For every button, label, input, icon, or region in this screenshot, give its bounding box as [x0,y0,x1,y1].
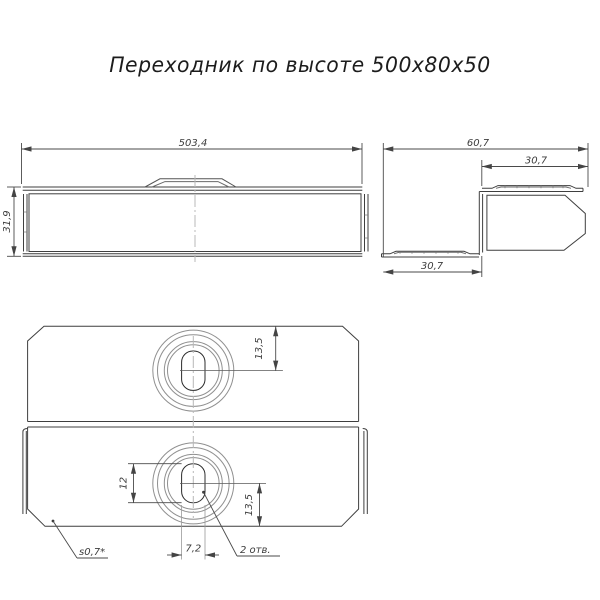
dim-label-side-bottom-flange: 30,7 [421,261,444,272]
side-plate [487,195,585,250]
side-view [382,186,586,257]
dim-label-side-overall: 60,7 [467,138,490,149]
plan-leader-holes-count: 2 отв. [202,491,280,556]
plan-view [23,326,367,526]
plan-leader-sheet-thickness: s0,7* [52,520,108,558]
plan-dim-slot-height: 12 [119,464,182,503]
label-sheet-thickness: s0,7* [79,547,105,558]
left-flange-strip [23,429,28,515]
dim-label-front-height: 31,9 [2,210,13,232]
plan-dim-hole-offset-top: 13,5 [254,326,278,370]
plan-dim-slot-width: 7,2 [167,505,219,560]
side-view-dim-bottom-flange: 30,7 [383,256,482,277]
dim-label-slot-height: 12 [119,477,130,490]
label-holes-count: 2 отв. [240,545,271,556]
dim-label-slot-width: 7,2 [185,544,201,555]
front-view-dim-width: 503,4 [22,138,363,184]
dim-label-hole-offset-bottom: 13,5 [244,494,255,516]
dim-label-side-top-flange: 30,7 [525,156,548,167]
side-view-dim-overall: 60,7 [383,138,588,257]
dim-label-hole-offset-top: 13,5 [254,337,265,359]
right-flange-strip [363,429,368,515]
drawing-canvas: 503,4 31,9 [0,0,600,600]
front-view [23,175,368,262]
front-view-dim-height: 31,9 [2,187,21,256]
plan-dim-hole-offset-bottom: 13,5 [244,483,262,526]
side-view-dim-top-flange: 30,7 [482,156,588,187]
dim-label-front-width: 503,4 [179,138,208,149]
